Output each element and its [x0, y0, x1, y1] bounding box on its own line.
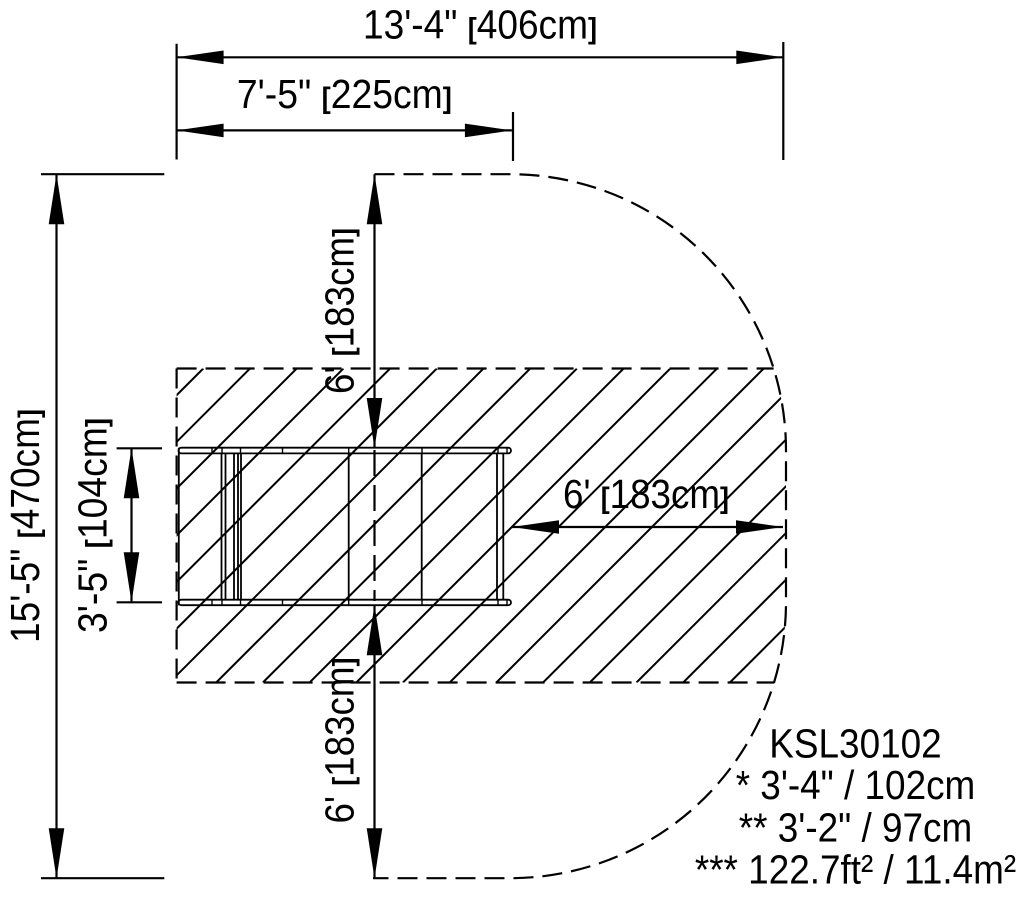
svg-text:13'-4" [406cm]: 13'-4" [406cm] — [363, 2, 597, 48]
svg-text:6' [183cm]: 6' [183cm] — [317, 658, 363, 824]
svg-text:3'-5" [104cm]: 3'-5" [104cm] — [70, 418, 116, 633]
svg-text:*** 122.7ft² / 11.4m²: *** 122.7ft² / 11.4m² — [695, 846, 1016, 892]
svg-text:* 3'-4" / 102cm: * 3'-4" / 102cm — [736, 762, 976, 808]
svg-text:6' [183cm]: 6' [183cm] — [563, 471, 729, 517]
svg-text:7'-5" [225cm]: 7'-5" [225cm] — [237, 71, 452, 117]
svg-text:15'-5" [470cm]: 15'-5" [470cm] — [2, 409, 48, 643]
svg-text:KSL30102: KSL30102 — [769, 721, 941, 767]
svg-text:** 3'-2" / 97cm: ** 3'-2" / 97cm — [739, 804, 972, 850]
svg-text:6' [183cm]: 6' [183cm] — [317, 228, 363, 394]
